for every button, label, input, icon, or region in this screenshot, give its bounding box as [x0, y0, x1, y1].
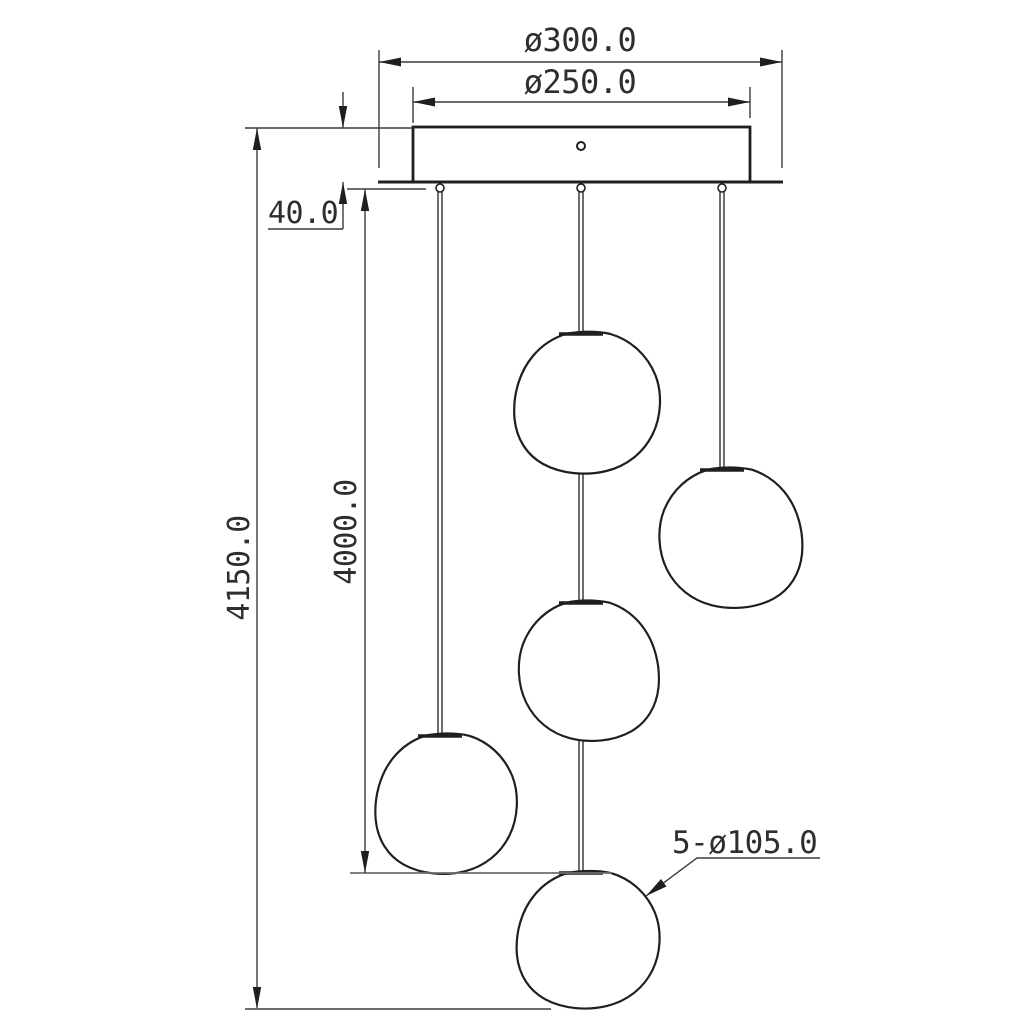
cord-left	[438, 184, 442, 736]
arrowhead-up	[253, 128, 261, 150]
arrowhead-up	[339, 182, 347, 204]
leader-globe-diameter: 5-ø105.0	[646, 825, 820, 896]
arrowhead-right	[760, 58, 782, 67]
arrowhead-left	[413, 98, 435, 107]
dim-label-cord-drop: 4000.0	[329, 479, 364, 584]
arrowhead-down	[361, 851, 369, 873]
cord-middle	[579, 184, 583, 873]
globe-bottom-middle	[517, 871, 660, 1009]
cord-connector-middle	[577, 184, 585, 192]
leader-line	[646, 858, 820, 896]
arrowhead-leader	[646, 879, 667, 896]
arrowhead-down	[253, 987, 261, 1009]
globe-top-middle	[514, 332, 660, 474]
globe-left	[375, 733, 517, 873]
globes-group	[375, 332, 802, 1009]
dim-label-overall-drop: 4150.0	[222, 515, 257, 620]
arrowhead-right	[728, 98, 750, 107]
cord-connectors-group	[436, 184, 726, 192]
canopy-group	[378, 127, 783, 182]
arrowhead-up	[361, 189, 369, 211]
dim-label-canopy-inner: ø250.0	[524, 63, 637, 101]
arrowhead-left	[379, 58, 401, 67]
globe-right	[659, 467, 802, 607]
canopy-body	[413, 127, 750, 182]
dim-canopy-height: 40.0	[245, 92, 413, 231]
pendant-lamp-technical-drawing: ø300.0 ø250.0 40.0 4150.0 4000.0	[0, 0, 1024, 1024]
dim-label-canopy-outer: ø300.0	[524, 21, 637, 59]
cord-right	[720, 184, 724, 470]
dim-label-canopy-height: 40.0	[268, 196, 338, 231]
dim-canopy-inner-diameter: ø250.0	[413, 63, 750, 123]
arrowhead-down	[339, 106, 347, 128]
drawing-canvas: ø300.0 ø250.0 40.0 4150.0 4000.0	[0, 0, 1024, 1024]
globe-center	[519, 600, 659, 740]
cord-connector-right	[718, 184, 726, 192]
dim-label-globe-diameter: 5-ø105.0	[672, 825, 817, 861]
dim-overall-drop: 4150.0	[222, 128, 551, 1009]
cord-connector-left	[436, 184, 444, 192]
